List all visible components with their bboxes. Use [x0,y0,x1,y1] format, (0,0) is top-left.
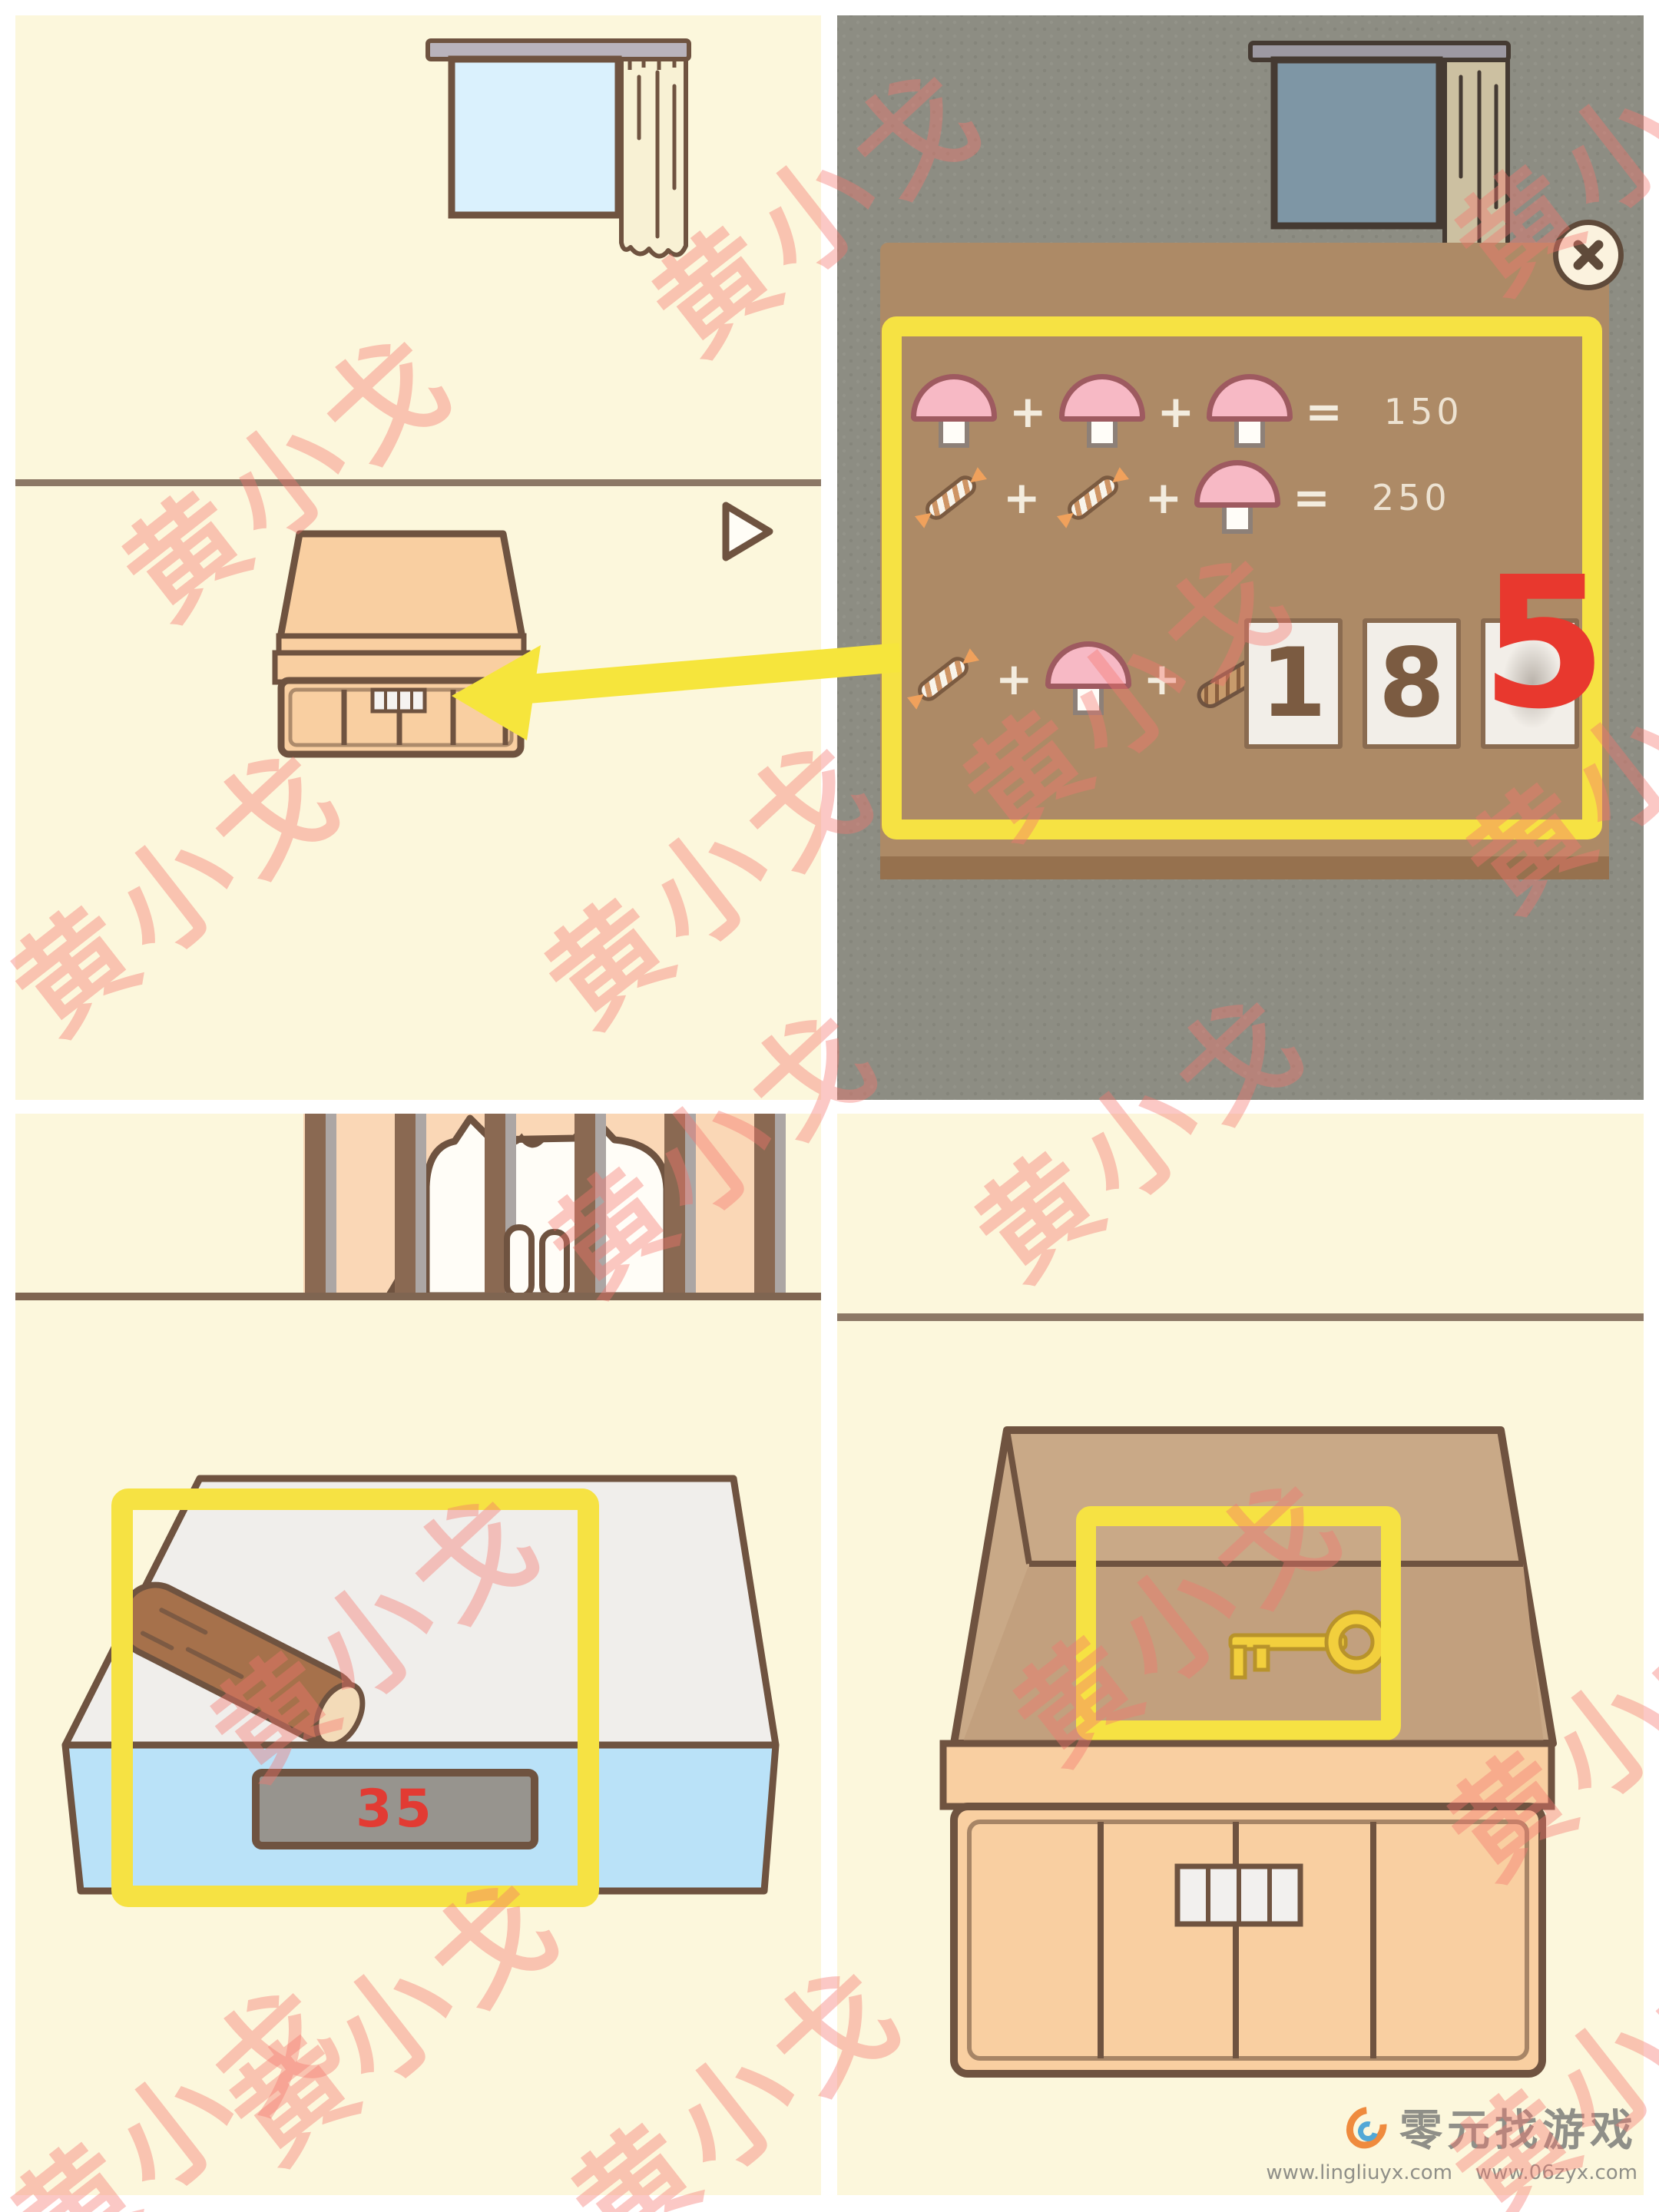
curtain [621,59,686,257]
mushroom-icon [1045,641,1131,717]
scale-display-value: 35 [256,1773,535,1846]
equation-value: 150 [1384,391,1463,432]
plus-sign: + [1003,475,1041,520]
plus-sign: + [995,657,1033,701]
flame-logo-icon [1346,2101,1392,2154]
box-front [954,1806,1542,2074]
open-box[interactable] [943,1430,1553,2074]
answer-card[interactable]: 8 [1363,618,1461,749]
equals-sign: = [1305,389,1343,434]
close-button[interactable] [1553,220,1624,290]
floor-line [837,1313,1644,1321]
drawer-cabinet[interactable] [275,534,528,754]
equation-value: 250 [1372,477,1451,518]
panel-scale-room: 35 [15,1114,821,2195]
answer-annotation: 5 [1481,553,1579,734]
site-name: 零元找游戏 [1399,2096,1637,2158]
equals-sign: = [1293,475,1330,520]
plus-sign: + [1145,475,1183,520]
panel-bright-room [15,15,821,1100]
window-glass [452,59,618,215]
walkthrough-collage: ++= 150 ++= 250 ++= 1 8 5 [0,0,1659,2212]
site-footer: 零元找游戏 www.lingliuyx.com www.06zyx.com [1266,2096,1637,2184]
site-url: www.06zyx.com [1475,2161,1637,2184]
panel-open-box: 零元找游戏 www.lingliuyx.com www.06zyx.com [837,1114,1644,2195]
drawer-combination-lock[interactable] [373,690,425,711]
mushroom-icon [1059,374,1145,449]
plus-sign: + [1009,389,1047,434]
box-combination-lock[interactable] [1177,1866,1300,1924]
mushroom-icon [911,374,997,449]
answer-card[interactable]: 1 [1244,618,1343,749]
bright-room-scene [15,15,821,1100]
popup-bottom-edge [880,856,1609,879]
drawer-lid [280,534,522,637]
equation-row-1: ++= 150 [906,372,1463,452]
curtain-dark [1445,60,1508,246]
mushroom-icon [1207,374,1293,449]
open-box-scene [837,1114,1644,2195]
box-front-edge [943,1743,1551,1806]
candy-icon [1046,454,1139,541]
candy-icon [904,454,997,541]
site-url: www.lingliuyx.com [1266,2161,1452,2184]
floor-line [15,479,821,486]
floor-line [15,1293,821,1300]
next-button[interactable] [726,505,770,558]
plus-sign: + [1144,657,1181,701]
panel-puzzle-popup: ++= 150 ++= 250 ++= 1 8 5 [837,15,1644,1100]
scale-room-scene [15,1114,821,2195]
equation-row-2: ++= 250 [906,458,1451,538]
candy-icon [896,635,989,723]
site-urls: www.lingliuyx.com www.06zyx.com [1266,2161,1637,2184]
plus-sign: + [1157,389,1195,434]
mushroom-icon [1194,460,1280,535]
